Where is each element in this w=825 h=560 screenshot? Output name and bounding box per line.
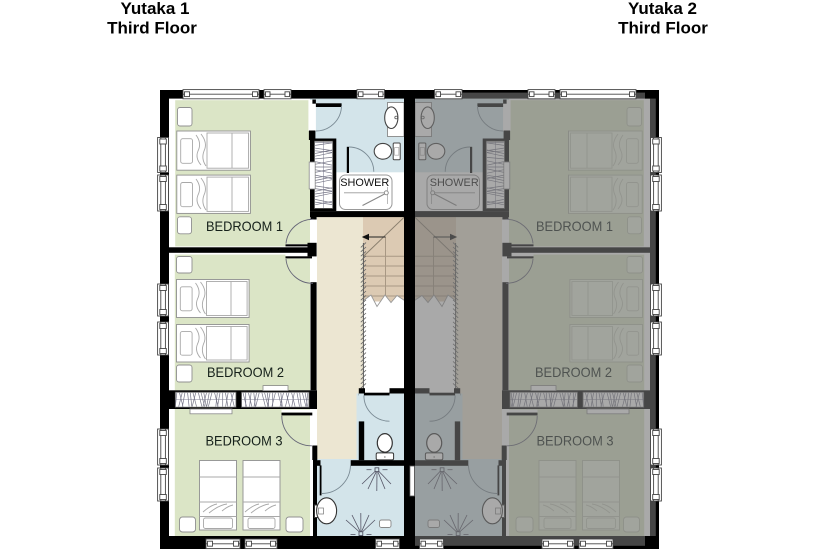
svg-text:Yutaka 2: Yutaka 2 — [628, 0, 697, 18]
svg-text:BEDROOM 1: BEDROOM 1 — [536, 218, 613, 234]
svg-text:Third Floor: Third Floor — [618, 19, 708, 38]
svg-text:BEDROOM 3: BEDROOM 3 — [537, 433, 614, 449]
svg-text:Third Floor: Third Floor — [107, 19, 197, 38]
svg-text:SHOWER: SHOWER — [340, 177, 389, 189]
svg-text:SHOWER: SHOWER — [430, 177, 479, 189]
svg-text:Yutaka 1: Yutaka 1 — [121, 0, 190, 18]
svg-text:BEDROOM 3: BEDROOM 3 — [206, 433, 283, 449]
svg-text:BEDROOM 1: BEDROOM 1 — [206, 218, 283, 234]
svg-text:BEDROOM 2: BEDROOM 2 — [535, 364, 612, 380]
svg-text:BEDROOM 2: BEDROOM 2 — [207, 364, 284, 380]
